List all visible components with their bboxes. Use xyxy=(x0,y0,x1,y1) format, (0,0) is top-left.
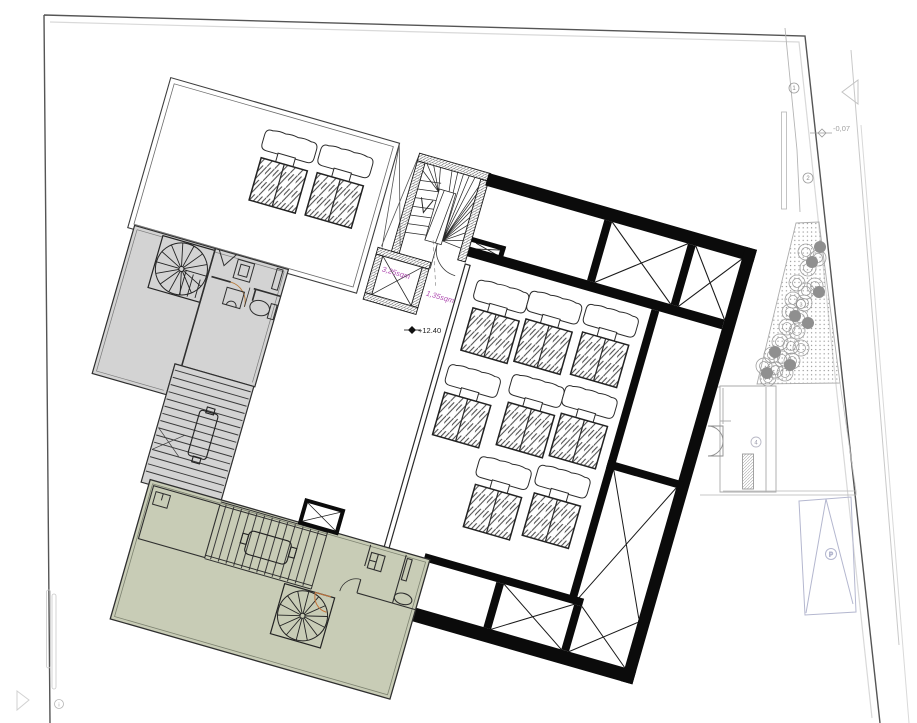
svg-text:P: P xyxy=(829,553,833,559)
svg-text:+12.40: +12.40 xyxy=(418,326,441,335)
svg-text:3: 3 xyxy=(799,302,802,308)
svg-text:i: i xyxy=(58,702,59,708)
svg-text:-0,07: -0,07 xyxy=(833,124,850,133)
